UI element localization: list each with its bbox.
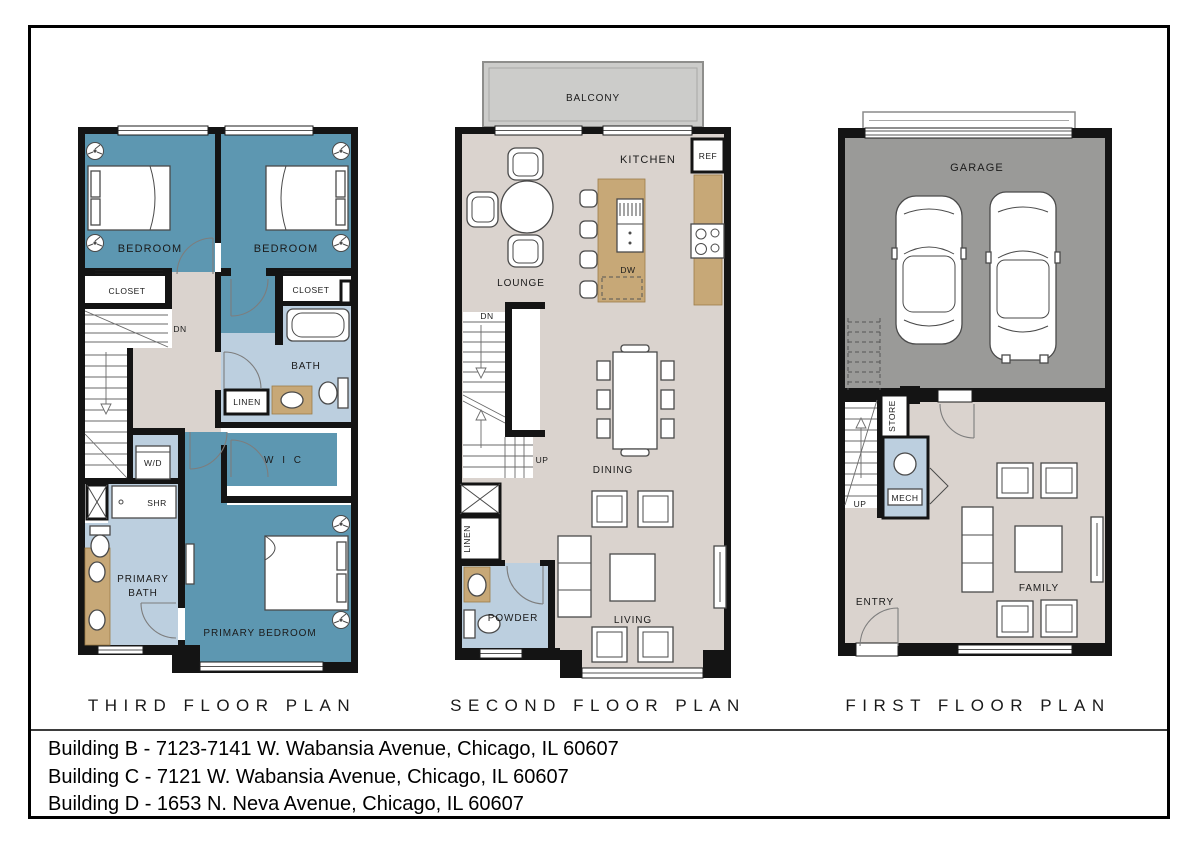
room-label-wd: W/D xyxy=(144,458,162,468)
bed-icon xyxy=(265,536,348,610)
ceiling-fan-icon xyxy=(333,143,350,160)
room-label-garage: GARAGE xyxy=(950,162,1004,174)
room-label-store: STORE xyxy=(887,400,897,432)
room-label-bath: BATH xyxy=(291,361,321,372)
ceiling-fan-icon xyxy=(87,235,104,252)
first-floor-plan-title: FIRST FLOOR PLAN xyxy=(798,696,1158,716)
second-floor-room-fills xyxy=(462,62,724,668)
ceiling-fan-icon xyxy=(87,143,104,160)
third-floor-plan: BEDROOM BEDROOM CLOSET CLOSET DN BATH LI… xyxy=(78,126,358,673)
room-label-family: FAMILY xyxy=(1019,583,1059,594)
room-label-ref: REF xyxy=(699,151,718,161)
room-label-primary-bedroom: PRIMARY BEDROOM xyxy=(203,628,316,639)
stair-label-dn: DN xyxy=(173,324,186,334)
stove-icon xyxy=(691,224,724,258)
room-label-primary-bath: BATH xyxy=(128,588,158,599)
room-label-balcony: BALCONY xyxy=(566,93,620,104)
room-label-entry: ENTRY xyxy=(856,597,894,608)
room-label-living: LIVING xyxy=(614,615,652,626)
shaft-box xyxy=(87,485,107,519)
first-floor-plan: GARAGE STORE MECH UP ENTRY FAMILY xyxy=(838,112,1112,656)
toilet-icon xyxy=(90,526,110,557)
bed-icon xyxy=(266,166,348,230)
address-line-building-c: Building C - 7121 W. Wabansia Avenue, Ch… xyxy=(48,764,619,792)
car-icon xyxy=(986,192,1060,363)
floor-plans-drawing: BEDROOM BEDROOM CLOSET CLOSET DN BATH LI… xyxy=(0,0,1200,849)
double-vanity-icon xyxy=(85,548,110,645)
bed-icon xyxy=(88,166,170,230)
room-hall-upper xyxy=(172,272,221,348)
ceiling-fan-icon xyxy=(333,516,350,533)
stair-void xyxy=(512,309,540,430)
title-address-divider xyxy=(31,729,1167,731)
bathtub-icon xyxy=(287,309,349,341)
ceiling-fan-icon xyxy=(333,612,350,629)
stair-winders xyxy=(505,437,533,478)
room-label-lounge: LOUNGE xyxy=(497,278,545,289)
address-line-building-b: Building B - 7123-7141 W. Wabansia Avenu… xyxy=(48,736,619,764)
room-label-powder: POWDER xyxy=(488,613,538,624)
room-label-linen: LINEN xyxy=(233,397,261,407)
room-label-bedroom: BEDROOM xyxy=(118,243,183,255)
shaft-box xyxy=(460,484,500,514)
second-floor-plan: BALCONY KITCHEN REF LOUNGE DW DN UP DINI… xyxy=(455,62,731,678)
room-corridor xyxy=(221,272,275,333)
kitchen-island xyxy=(598,179,645,302)
mech-room xyxy=(883,437,928,518)
room-label-shr: SHR xyxy=(147,498,166,508)
room-label-wic: W I C xyxy=(264,455,304,466)
ceiling-fan-icon xyxy=(333,235,350,252)
floor-plan-sheet: BEDROOM BEDROOM CLOSET CLOSET DN BATH LI… xyxy=(0,0,1200,849)
room-label-mech: MECH xyxy=(891,493,918,503)
room-label-kitchen: KITCHEN xyxy=(620,154,676,166)
second-floor-plan-title: SECOND FLOOR PLAN xyxy=(418,696,778,716)
address-line-building-d: Building D - 1653 N. Neva Avenue, Chicag… xyxy=(48,791,619,819)
car-icon xyxy=(892,196,966,344)
room-hall-lower xyxy=(133,348,221,435)
stair-label-dn: DN xyxy=(480,311,493,321)
stair-label-up: UP xyxy=(536,455,549,465)
room-corridor-2 xyxy=(185,432,227,510)
address-block: Building B - 7123-7141 W. Wabansia Avenu… xyxy=(48,736,619,819)
water-heater-icon xyxy=(894,453,916,475)
room-label-closet: CLOSET xyxy=(108,286,145,296)
room-label-linen: LINEN xyxy=(462,525,472,553)
garage-door-panel xyxy=(863,112,1075,129)
third-floor-plan-title: THIRD FLOOR PLAN xyxy=(42,696,402,716)
room-label-primary-bath: PRIMARY xyxy=(117,574,169,585)
room-label-bedroom: BEDROOM xyxy=(254,243,319,255)
stair-label-up: UP xyxy=(854,499,867,509)
room-label-dining: DINING xyxy=(593,465,633,476)
room-label-closet: CLOSET xyxy=(292,285,329,295)
closet-niche xyxy=(341,281,351,303)
dresser-icon xyxy=(186,544,194,584)
stair-shaft xyxy=(463,312,505,478)
room-garage xyxy=(845,138,1105,394)
bath-vanity-icon xyxy=(272,386,312,414)
room-label-dw: DW xyxy=(620,265,635,275)
